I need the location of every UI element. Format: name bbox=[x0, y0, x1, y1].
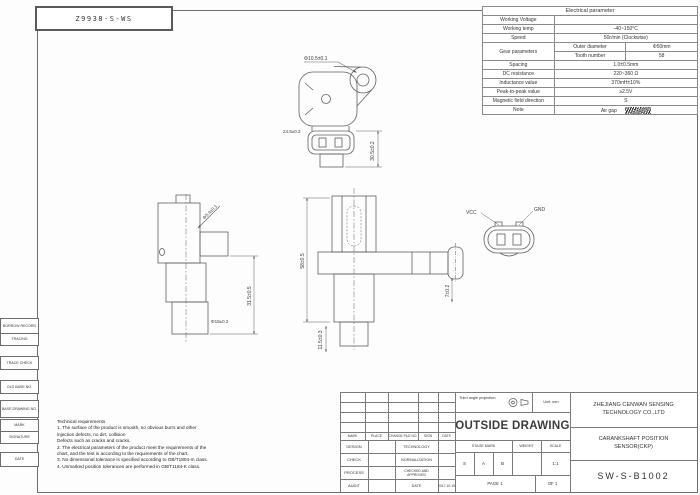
dim-width: 24.5±0.2 bbox=[283, 129, 301, 134]
scale-label: SCALE bbox=[541, 440, 570, 452]
dim-lower: 11.5±0.3 bbox=[318, 330, 324, 349]
drawing-title: OUTSIDE DRAWING bbox=[455, 412, 570, 440]
front-view bbox=[303, 188, 463, 352]
pin-label-vcc: VCC bbox=[466, 210, 477, 216]
rev-header: MARK bbox=[340, 432, 365, 440]
sign-label: DATE bbox=[395, 479, 438, 492]
pin-label-gnd: GND bbox=[534, 207, 546, 213]
product-name: CARANKSHAFT POSITION SENSOR(CKP) bbox=[570, 427, 697, 460]
sign-label: CHECKED AND APPROVED bbox=[395, 466, 438, 479]
title-block: MARK PLACE CHANGE FILE NO. SIGN DATE DES… bbox=[340, 392, 697, 492]
page-number: OF 1 bbox=[535, 475, 570, 492]
drawing-number: SW-S-B1002 bbox=[570, 460, 697, 492]
dim-length: 31.5±0.5 bbox=[247, 286, 253, 306]
projection-symbol-icon bbox=[508, 397, 530, 408]
stage-mark: A bbox=[474, 452, 493, 475]
dim-body-height: 58±0.5 bbox=[300, 253, 306, 268]
margin-box: TRACE CHECK bbox=[0, 356, 39, 370]
margin-box: TRACING bbox=[0, 333, 39, 346]
weight-label: WEIGHT bbox=[512, 440, 541, 452]
techreq-line: 4. Unmarked position tolerances are perf… bbox=[57, 464, 267, 470]
sign-label: TECHNOLOGY bbox=[395, 440, 438, 453]
sign-date: 2017.10.15 bbox=[438, 479, 455, 492]
sign-label: DESIGN bbox=[340, 440, 368, 453]
dim-hole: Φ10.5±0.1 bbox=[304, 56, 328, 62]
stage-mark: S bbox=[455, 452, 474, 475]
page-count: PAGE 1 bbox=[455, 475, 535, 492]
company-name: ZHEJIANG CENWAN SENSING TECHNOLOGY CO.,L… bbox=[570, 392, 697, 427]
rev-header: DATE bbox=[438, 432, 455, 440]
sign-label: NORMALIZATION bbox=[395, 453, 438, 466]
sign-label: CHECK bbox=[340, 453, 368, 466]
drawing-sheet: Z9938-S-WS Electrical parameter Working … bbox=[0, 0, 700, 495]
stage-mark-label: STAGE MARK bbox=[455, 440, 512, 452]
technical-requirements: Technical requirements 1. The surface of… bbox=[57, 419, 267, 470]
dim-flange: 7±0.2 bbox=[445, 285, 451, 298]
rev-header: CHANGE FILE NO. bbox=[388, 432, 418, 440]
unit-note: Unit: mm bbox=[532, 392, 570, 412]
sign-label: PROCESS bbox=[340, 466, 368, 479]
margin-box: BASE DRAWING NO. bbox=[0, 400, 39, 418]
dim-height: 30.5±0.2 bbox=[370, 141, 376, 161]
scale-value: 1:1 bbox=[541, 452, 570, 475]
stage-mark: B bbox=[493, 452, 512, 475]
margin-box: OLD BASE NO. bbox=[0, 380, 39, 394]
rev-header: SIGN bbox=[418, 432, 438, 440]
dim-pin: Φ5.4±0.1 bbox=[202, 203, 219, 220]
dim-tip: Φ18±0.2 bbox=[211, 319, 229, 324]
connector-detail-view bbox=[481, 211, 534, 256]
projection-note: Third angle projection bbox=[459, 396, 507, 400]
weight-value bbox=[512, 452, 541, 475]
margin-box: DATE bbox=[0, 452, 39, 467]
margin-box: SIGNATURE bbox=[0, 431, 39, 444]
sign-label: AUDIT bbox=[340, 479, 368, 492]
rev-header: PLACE bbox=[365, 432, 388, 440]
